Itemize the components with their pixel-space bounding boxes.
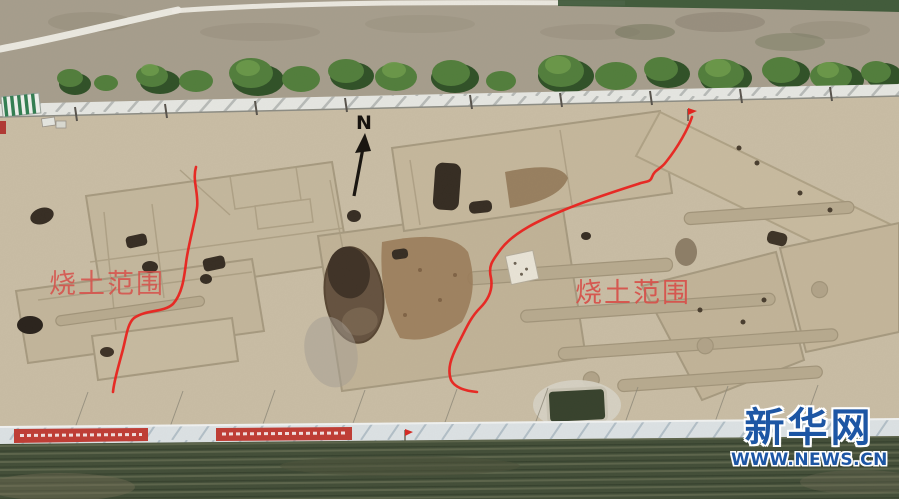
xinhua-logo-text: 新华网 [731, 408, 887, 448]
burnt-area-label-left: 烧土范围 [49, 262, 165, 301]
aerial-excavation-photo: N 烧土范围 烧土范围 新华网 WWW.NEWS.CN [0, 0, 899, 499]
burnt-area-label-right: 烧土范围 [575, 271, 691, 310]
north-label: N [356, 112, 372, 134]
xinhua-url-text: WWW.NEWS.CN [731, 452, 887, 469]
xinhua-watermark: 新华网 WWW.NEWS.CN [731, 408, 887, 469]
